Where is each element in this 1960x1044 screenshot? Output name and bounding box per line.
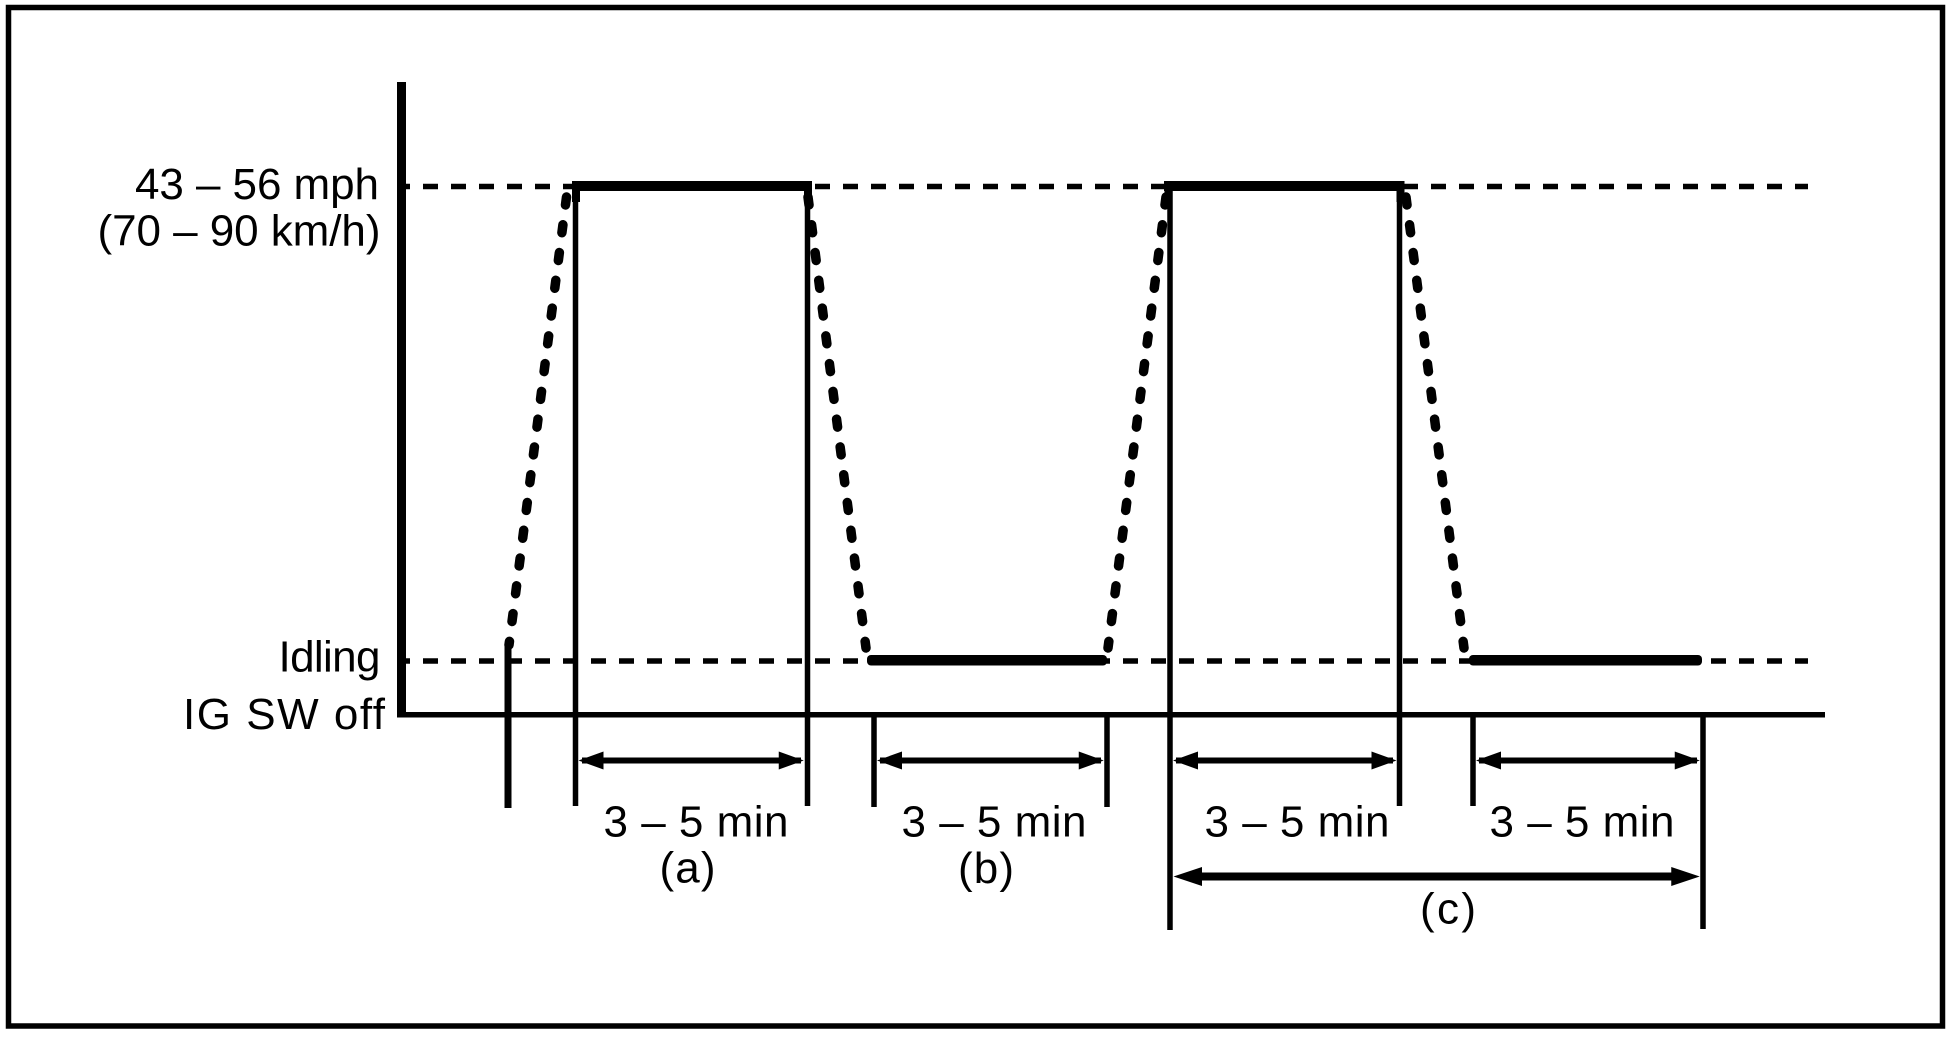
svg-text:(70 – 90 km/h): (70 – 90 km/h): [98, 207, 381, 256]
svg-text:(c): (c): [1420, 885, 1476, 934]
svg-text:Idling: Idling: [279, 633, 381, 682]
svg-text:3 – 5 min: 3 – 5 min: [604, 798, 789, 847]
svg-text:43 – 56 mph: 43 – 56 mph: [135, 160, 379, 209]
svg-text:(b): (b): [958, 844, 1014, 893]
svg-text:3 – 5 min: 3 – 5 min: [1490, 798, 1675, 847]
svg-text:IG SW off: IG SW off: [183, 690, 386, 739]
svg-text:3 – 5 min: 3 – 5 min: [902, 798, 1087, 847]
svg-text:3 – 5 min: 3 – 5 min: [1205, 798, 1390, 847]
svg-text:(a): (a): [660, 844, 716, 893]
